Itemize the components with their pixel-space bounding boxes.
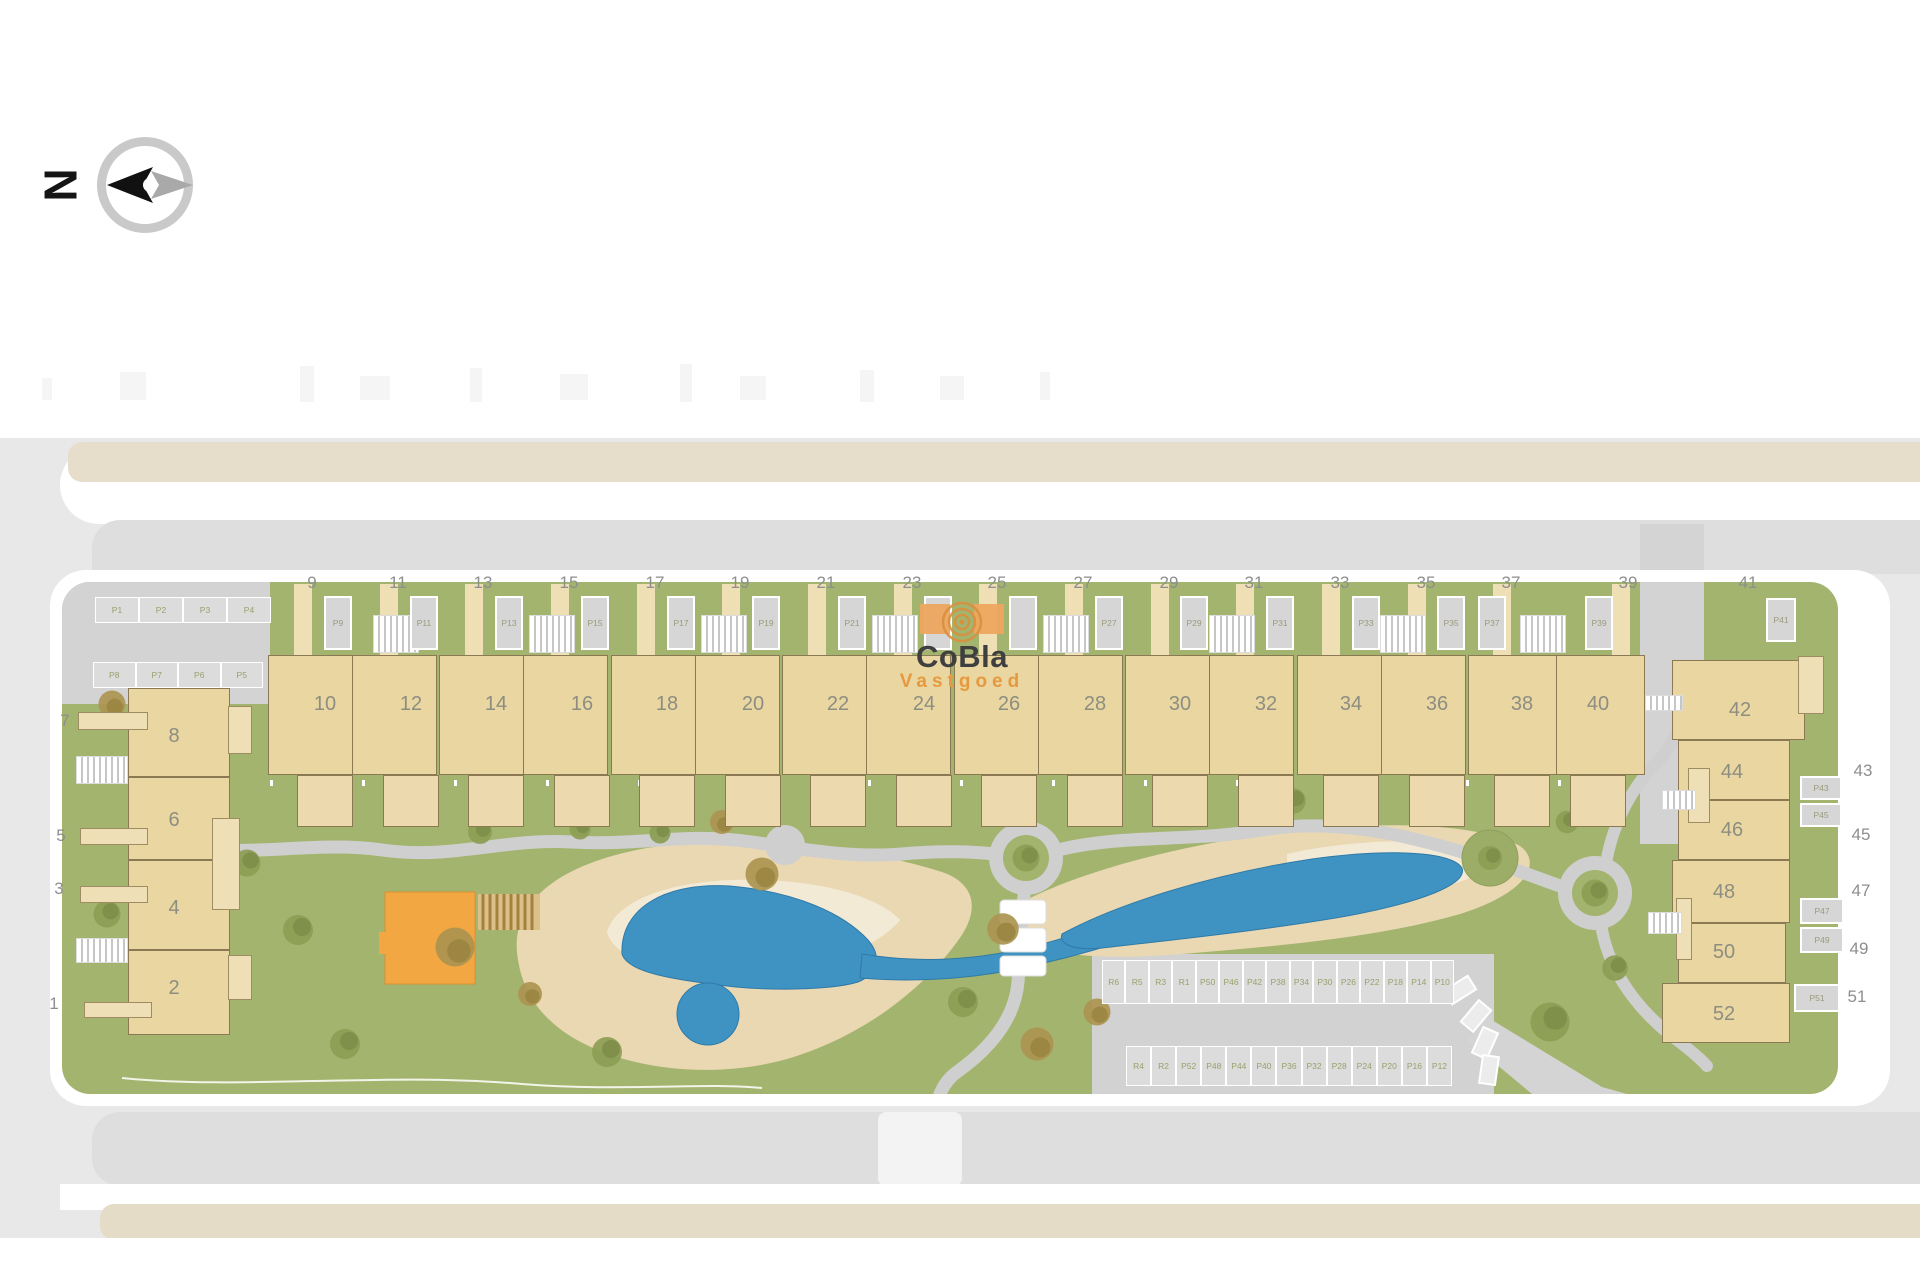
stall: P32: [1302, 1046, 1327, 1086]
pad-label: P45: [1813, 810, 1828, 820]
pool-round: [677, 983, 739, 1045]
street-number: 19: [723, 574, 757, 591]
parking-pad: P51: [1794, 984, 1840, 1012]
house-number: 52: [1702, 1004, 1746, 1024]
bridge: [1000, 956, 1046, 976]
stall: P14: [1407, 960, 1430, 1004]
stall: P40: [1251, 1046, 1276, 1086]
ghost-mark: [120, 372, 146, 400]
rear-extension: [1570, 775, 1626, 827]
garden-line: [122, 1078, 762, 1088]
pad-label: P41: [1773, 615, 1788, 625]
pad-label: P17: [673, 618, 688, 628]
street-number: 51: [1840, 988, 1874, 1005]
pad-label: P35: [1443, 618, 1458, 628]
street-number: 33: [1323, 574, 1357, 591]
street-number: 31: [1237, 574, 1271, 591]
pad-label: P27: [1101, 618, 1116, 628]
pad-label: P37: [1484, 618, 1499, 628]
stall: P16: [1402, 1046, 1427, 1086]
house-number: 2: [152, 978, 196, 998]
rear-extension: [468, 775, 524, 827]
street-number: 5: [51, 827, 71, 844]
stairs: [76, 938, 128, 963]
driveway: [1612, 584, 1630, 666]
bottom-margin: [0, 1238, 1920, 1280]
parking-pad: P17: [667, 596, 695, 650]
rear-extension: [1323, 775, 1379, 827]
house-number: 38: [1500, 694, 1544, 714]
central-parking-row-2: R4 R2 P52 P48 P44 P40 P36 P32 P28 P24 P2…: [1126, 1046, 1452, 1086]
rear-extension: [297, 775, 353, 827]
house-number: 48: [1702, 882, 1746, 902]
ghost-mark: [560, 374, 588, 400]
street-number: 41: [1731, 574, 1765, 591]
parking-pad: P43: [1800, 776, 1842, 800]
house-number: 10: [303, 694, 347, 714]
rear-extension: [981, 775, 1037, 827]
house-number: 14: [474, 694, 518, 714]
compass-north-label: N: [34, 168, 88, 201]
street-number: 27: [1066, 574, 1100, 591]
stall: P24: [1352, 1046, 1377, 1086]
parking-pad: P11: [410, 596, 438, 650]
party-wall: [695, 655, 696, 775]
stairs: [701, 615, 747, 653]
stall: P6: [178, 662, 221, 688]
tree-icon: [1531, 1003, 1570, 1042]
stairs: [1209, 615, 1255, 653]
street-number: 9: [295, 574, 329, 591]
ghost-mark: [42, 378, 52, 400]
pad-label: P13: [501, 618, 516, 628]
street-number: 21: [809, 574, 843, 591]
porch-1: [84, 1002, 152, 1018]
brand-mark-icon: [880, 598, 1044, 644]
street-number: 1: [44, 995, 64, 1012]
stall: P34: [1290, 960, 1313, 1004]
stall: P26: [1337, 960, 1360, 1004]
house-number: 18: [645, 694, 689, 714]
rear-extension: [554, 775, 610, 827]
ghost-mark: [470, 368, 482, 402]
house-number: 24: [902, 694, 946, 714]
street-number: 15: [552, 574, 586, 591]
parking-pad: P47: [1800, 898, 1844, 924]
pad-label: P33: [1358, 618, 1373, 628]
parking-pad: P49: [1800, 927, 1844, 953]
tree-icon: [518, 982, 542, 1006]
tree-icon: [948, 987, 978, 1017]
visitor-parking-row-2: P8 P7 P6 P5: [93, 662, 263, 688]
bottom-sidewalk-band: [100, 1204, 1920, 1240]
street-number: 25: [980, 574, 1014, 591]
pad-label: P29: [1186, 618, 1201, 628]
house-number: 16: [560, 694, 604, 714]
house-number: 42: [1718, 700, 1762, 720]
rear-extension: [1152, 775, 1208, 827]
stairs: [1380, 615, 1426, 653]
tree-icon: [592, 1037, 622, 1067]
stairs: [1043, 615, 1089, 653]
street-number: 35: [1409, 574, 1443, 591]
parking-pad: P39: [1585, 596, 1613, 650]
house-number: 40: [1576, 694, 1620, 714]
pad-label: P21: [844, 618, 859, 628]
street-number: 23: [895, 574, 929, 591]
stall: P12: [1427, 1046, 1452, 1086]
stall: P22: [1360, 960, 1383, 1004]
rear-extension: [1238, 775, 1294, 827]
street-number: 7: [55, 712, 75, 729]
parking-pad: P45: [1800, 803, 1842, 827]
street-number: 17: [638, 574, 672, 591]
house-number: 30: [1158, 694, 1202, 714]
stall: R2: [1151, 1046, 1176, 1086]
ghost-mark: [860, 370, 874, 402]
ghost-mark: [740, 376, 766, 400]
ghost-mark: [360, 376, 390, 400]
stall: R5: [1125, 960, 1148, 1004]
pad-label: P51: [1809, 993, 1824, 1003]
porch-5: [80, 828, 148, 845]
stall: P3: [183, 597, 227, 623]
tree-icon: [1021, 1028, 1054, 1061]
stairs: [1662, 790, 1696, 810]
tree-icon: [1602, 955, 1628, 981]
house-number: 22: [816, 694, 860, 714]
stairs: [76, 756, 128, 784]
street-number: 43: [1846, 762, 1880, 779]
street-number: 47: [1844, 882, 1878, 899]
party-wall: [352, 655, 353, 775]
house-number: 50: [1702, 942, 1746, 962]
path-plaza: [765, 825, 805, 865]
parking-pad: P13: [495, 596, 523, 650]
pad-label: P15: [587, 618, 602, 628]
rear-extension: [1067, 775, 1123, 827]
street-number: 3: [49, 880, 69, 897]
house-number: 44: [1710, 762, 1754, 782]
ghost-mark: [940, 376, 964, 400]
tree-icon: [1582, 880, 1609, 907]
parking-pad: P15: [581, 596, 609, 650]
parking-pad: P19: [752, 596, 780, 650]
playground-step: [379, 932, 387, 954]
tree-icon: [1478, 846, 1502, 870]
house-number: 26: [987, 694, 1031, 714]
site-plan: P1 P2 P3 P4 P8 P7 P6 P5 8 6 4 2 7 5 3 1 …: [0, 0, 1920, 1280]
driveway: [1151, 584, 1169, 666]
party-wall: [1209, 655, 1210, 775]
stall: R3: [1149, 960, 1172, 1004]
stall: P28: [1327, 1046, 1352, 1086]
stall: P44: [1226, 1046, 1251, 1086]
house-number: 34: [1329, 694, 1373, 714]
house-6-wing: [212, 818, 240, 910]
stall: P46: [1219, 960, 1242, 1004]
brand-name: CoBla: [880, 641, 1044, 672]
porch-3: [80, 886, 148, 903]
pad-label: P39: [1591, 618, 1606, 628]
stall: R1: [1172, 960, 1195, 1004]
driveway: [465, 584, 483, 666]
street-number: 29: [1152, 574, 1186, 591]
house-8-wing: [228, 706, 252, 754]
stall: P10: [1431, 960, 1454, 1004]
stall: P18: [1384, 960, 1407, 1004]
house-42-wing: [1798, 656, 1824, 714]
tree-icon: [283, 915, 313, 945]
bottom-crossing: [878, 1112, 962, 1186]
parking-pad: P27: [1095, 596, 1123, 650]
stairs: [1645, 695, 1683, 711]
street-number: 45: [1844, 826, 1878, 843]
house-number: 6: [152, 810, 196, 830]
visitor-parking-row-1: P1 P2 P3 P4: [95, 597, 271, 623]
street-number: 13: [466, 574, 500, 591]
parking-pad: P33: [1352, 596, 1380, 650]
tree-icon: [94, 901, 121, 928]
street-number: 39: [1611, 574, 1645, 591]
street-number: 49: [1842, 940, 1876, 957]
house-number: 12: [389, 694, 433, 714]
driveway: [637, 584, 655, 666]
bottom-access-road: [92, 1112, 1920, 1186]
house-number: 8: [152, 726, 196, 746]
pad-label: P11: [417, 618, 432, 628]
stall: P1: [95, 597, 139, 623]
parking-pad: P21: [838, 596, 866, 650]
street-number: 37: [1494, 574, 1528, 591]
stairs: [1520, 615, 1566, 653]
stall: P4: [227, 597, 271, 623]
rear-extension: [383, 775, 439, 827]
rear-extension: [725, 775, 781, 827]
pad-label: P47: [1814, 906, 1829, 916]
stall: P38: [1266, 960, 1289, 1004]
stall: R4: [1126, 1046, 1151, 1086]
stall: P50: [1196, 960, 1219, 1004]
brand-logo: CoBla Vastgoed: [880, 598, 1044, 693]
stall: P52: [1176, 1046, 1201, 1086]
party-wall: [866, 655, 867, 775]
stall: P42: [1243, 960, 1266, 1004]
house-2-wing: [228, 955, 252, 1000]
tree-icon: [1013, 845, 1040, 872]
house-number: 28: [1073, 694, 1117, 714]
rear-extension: [1409, 775, 1465, 827]
compass-needle-icon: [95, 155, 205, 215]
party-wall: [523, 655, 524, 775]
parking-pad: P29: [1180, 596, 1208, 650]
parking-pad: P9: [324, 596, 352, 650]
tree-icon: [330, 1029, 360, 1059]
central-parking-row-1: R6 R5 R3 R1 P50 P46 P42 P38 P34 P30 P26 …: [1102, 960, 1454, 1004]
stall: P7: [136, 662, 179, 688]
house-number: 32: [1244, 694, 1288, 714]
stairs: [1648, 912, 1682, 934]
party-wall: [1381, 655, 1382, 775]
top-sidewalk-band: [68, 442, 1920, 482]
stall: P30: [1313, 960, 1336, 1004]
porch-7: [78, 712, 148, 730]
stall: P36: [1276, 1046, 1301, 1086]
pad-label: P9: [333, 618, 343, 628]
angled-stall: [1479, 1055, 1499, 1085]
ghost-mark: [300, 366, 314, 402]
boardwalk: [478, 894, 540, 930]
tree-icon: [987, 913, 1019, 945]
stairs: [529, 615, 575, 653]
rear-extension: [639, 775, 695, 827]
stall: P5: [221, 662, 264, 688]
driveway: [294, 584, 312, 666]
stall: P20: [1377, 1046, 1402, 1086]
parking-pad: P31: [1266, 596, 1294, 650]
street-number: 11: [381, 574, 415, 591]
pad-label: P49: [1814, 935, 1829, 945]
ghost-mark: [680, 364, 692, 402]
pad-label: P31: [1272, 618, 1287, 628]
park-path-west: [172, 838, 994, 855]
tree-icon: [746, 858, 779, 891]
parking-pad: P35: [1437, 596, 1465, 650]
driveway: [1322, 584, 1340, 666]
house-number: 4: [152, 898, 196, 918]
pad-label: P19: [758, 618, 773, 628]
pad-label: P43: [1813, 783, 1828, 793]
rear-extension: [810, 775, 866, 827]
rear-extension: [1494, 775, 1550, 827]
rear-extension: [896, 775, 952, 827]
stall: P2: [139, 597, 183, 623]
brand-tagline: Vastgoed: [880, 672, 1044, 693]
party-wall: [1556, 655, 1557, 775]
driveway: [808, 584, 826, 666]
house-number: 36: [1415, 694, 1459, 714]
parking-pad: P41: [1766, 598, 1796, 642]
stall: P8: [93, 662, 136, 688]
tree-icon: [436, 928, 475, 967]
house-number: 20: [731, 694, 775, 714]
stall: R6: [1102, 960, 1125, 1004]
stall: P48: [1201, 1046, 1226, 1086]
ghost-mark: [1040, 372, 1050, 400]
house-number: 46: [1710, 820, 1754, 840]
parking-pad: P37: [1478, 596, 1506, 650]
